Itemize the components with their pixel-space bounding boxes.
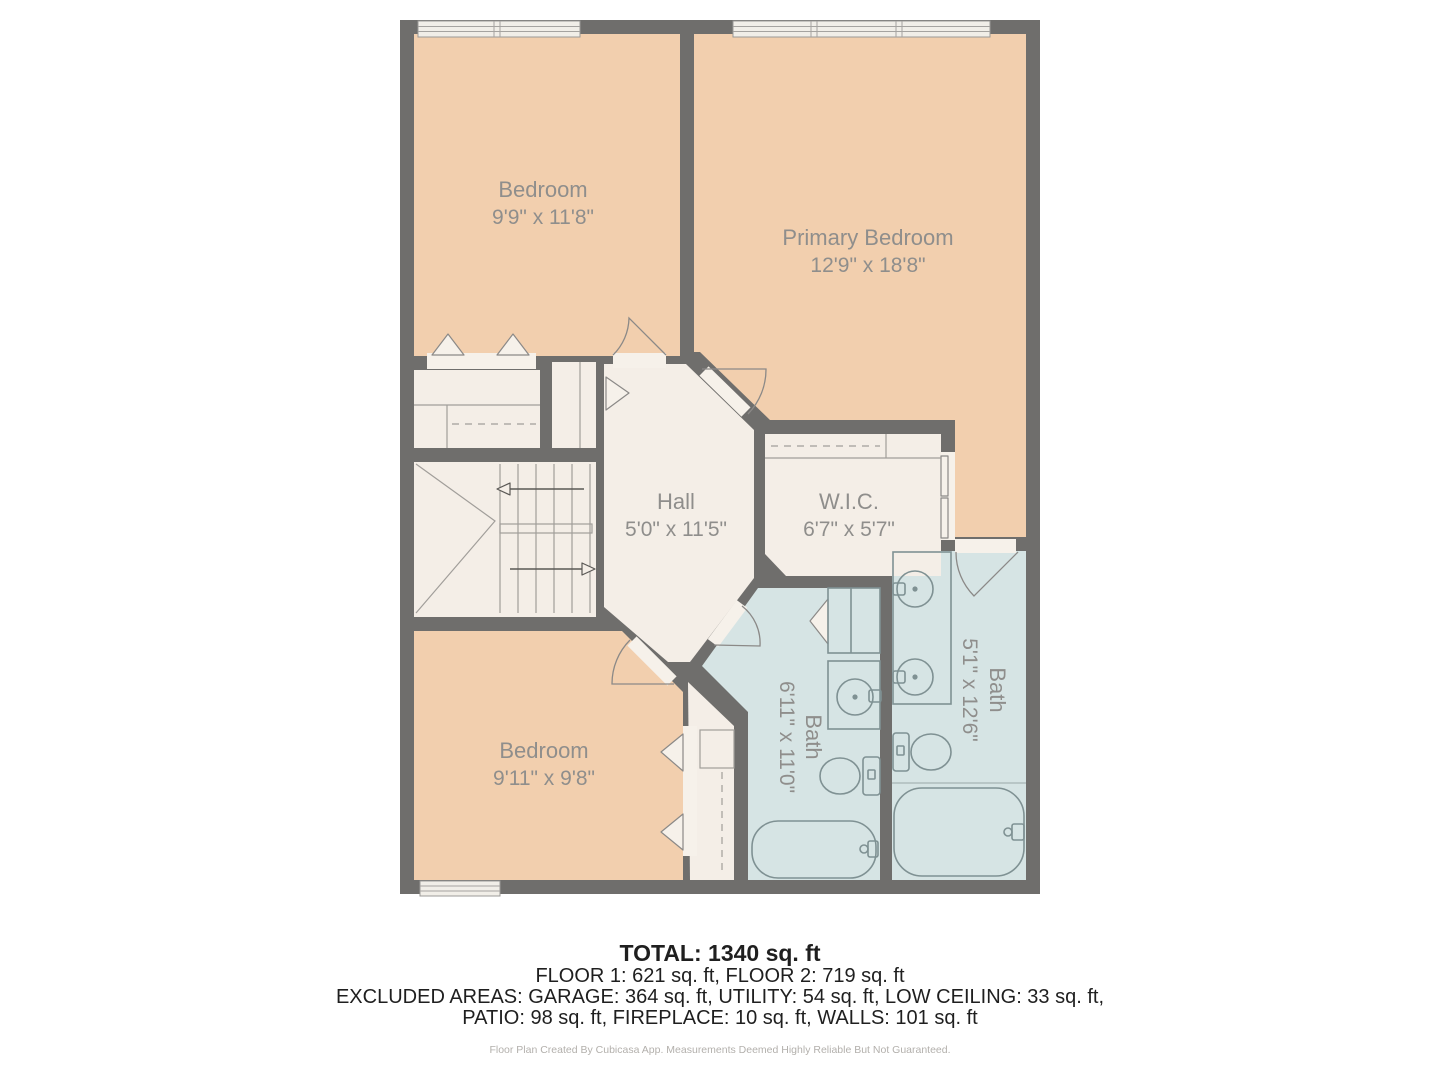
door-opening-bedroom-top (613, 353, 666, 368)
excluded-areas-text-1: EXCLUDED AREAS: GARAGE: 364 sq. ft, UTIL… (0, 987, 1440, 1008)
door-opening-bath-large (955, 539, 1016, 553)
floor-plan-page: Bedroom 9'9" x 11'8" Primary Bedroom 12'… (0, 0, 1440, 1080)
room-dims-wic: 6'7" x 5'7" (803, 518, 895, 541)
room-dims-bath-small: 6'11" x 11'0" (775, 681, 798, 793)
room-dims-hall: 5'0" x 11'5" (625, 518, 727, 541)
closet-top-floor (414, 370, 540, 448)
wic-bifold-leaf (941, 456, 948, 496)
disclaimer-text: Floor Plan Created By Cubicasa App. Meas… (0, 1044, 1440, 1056)
room-label-hall: Hall (657, 489, 695, 514)
room-label-bedroom-top: Bedroom (498, 177, 587, 202)
area-summary: TOTAL: 1340 sq. ft FLOOR 1: 621 sq. ft, … (0, 941, 1440, 1056)
floor-areas-text: FLOOR 1: 621 sq. ft, FLOOR 2: 719 sq. ft (0, 966, 1440, 987)
closet-opening-bedroom-bottom (683, 726, 697, 856)
window-bedroom-bottom (420, 881, 500, 896)
room-dims-bedroom-top: 9'9" x 11'8" (492, 206, 594, 229)
room-label-bedroom-bottom: Bedroom (499, 738, 588, 763)
window-primary-bedroom (733, 21, 990, 37)
total-area-text: TOTAL: 1340 sq. ft (0, 941, 1440, 966)
floor-plan-svg: Bedroom 9'9" x 11'8" Primary Bedroom 12'… (0, 0, 1440, 1080)
room-dims-bedroom-bottom: 9'11" x 9'8" (493, 767, 595, 790)
room-dims-bath-large: 5'1" x 12'6" (958, 638, 981, 742)
excluded-areas-text-2: PATIO: 98 sq. ft, FIREPLACE: 10 sq. ft, … (0, 1008, 1440, 1029)
room-label-primary-bedroom: Primary Bedroom (782, 225, 953, 250)
room-label-bath-small: Bath (801, 714, 826, 759)
room-label-bath-large: Bath (985, 667, 1010, 712)
hall-cabinet-floor (552, 362, 596, 448)
wic-bifold-leaf (941, 498, 948, 538)
window-bedroom-top (418, 21, 580, 37)
room-dims-primary-bedroom: 12'9" x 18'8" (810, 254, 925, 277)
room-label-wic: W.I.C. (819, 489, 879, 514)
